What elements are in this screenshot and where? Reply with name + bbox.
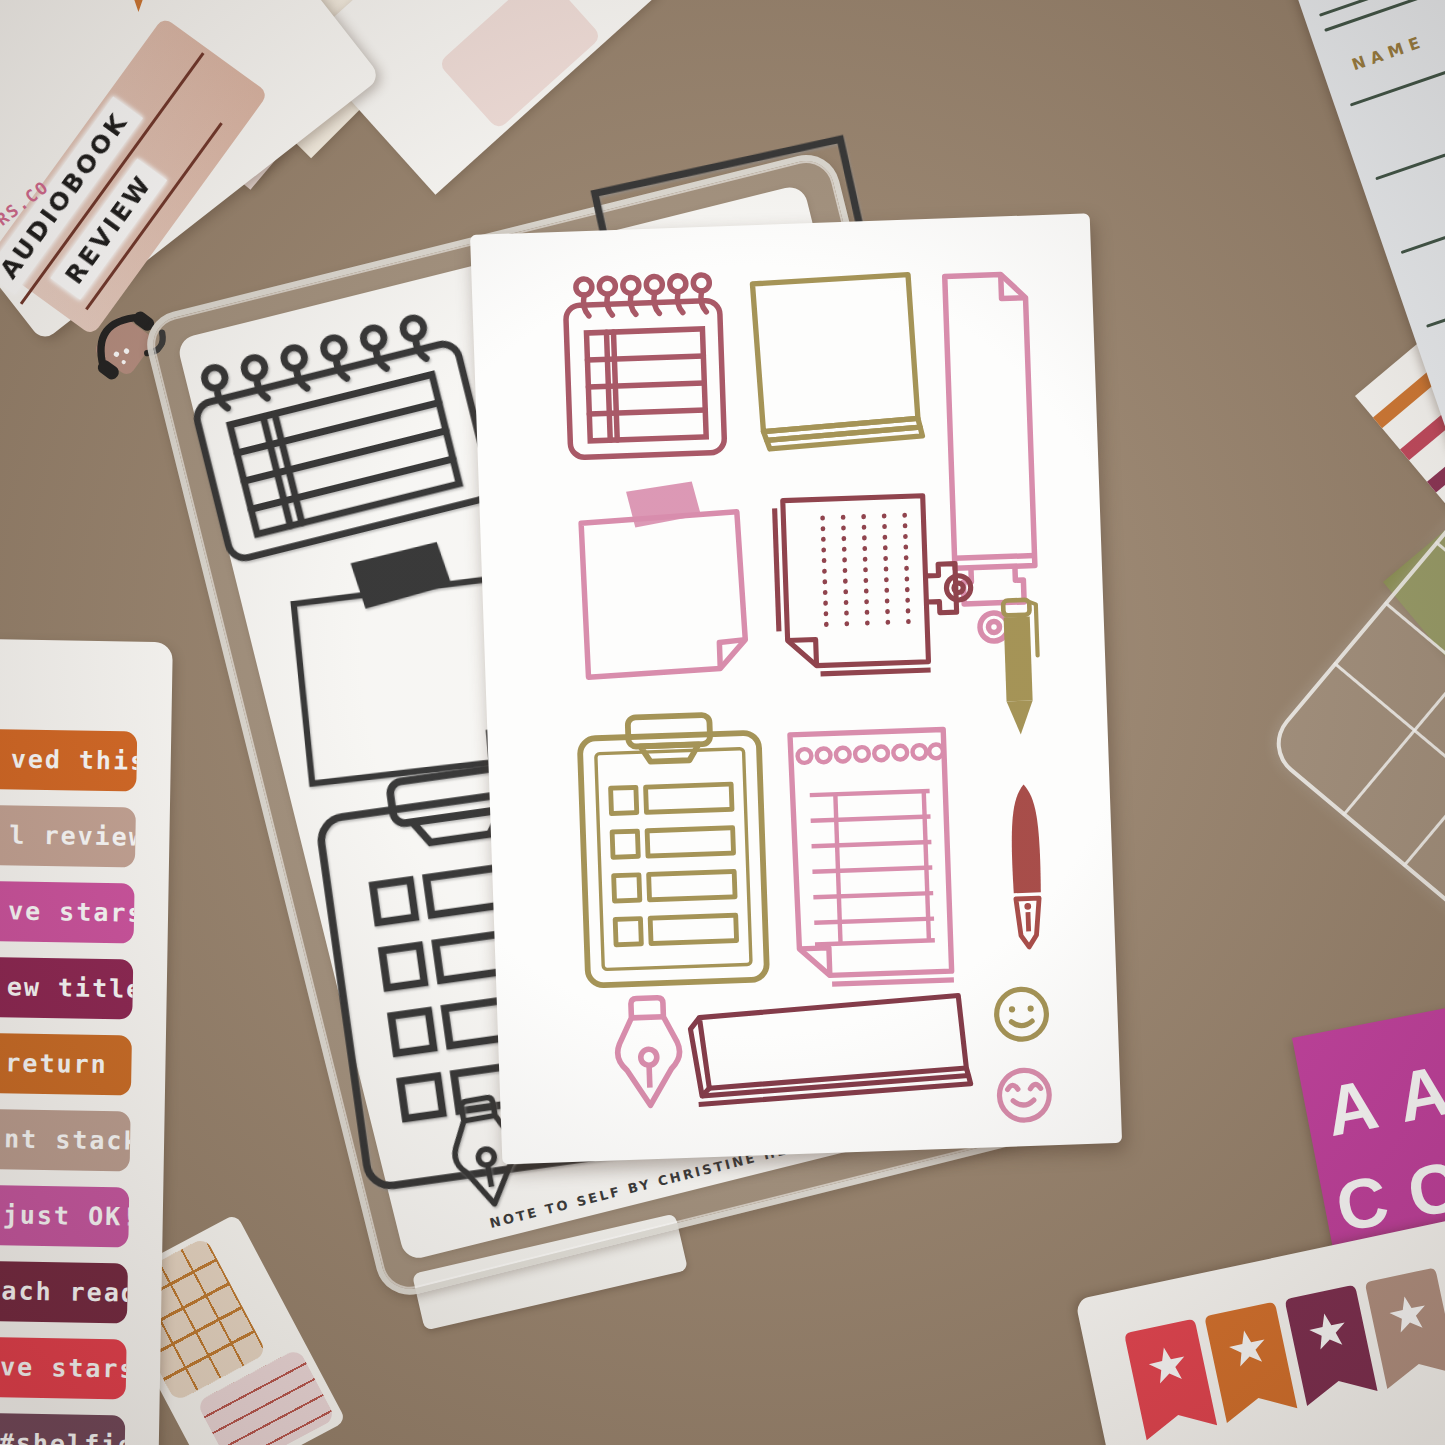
word-sticker-label: l review — [9, 820, 136, 851]
rule-line — [1426, 182, 1445, 328]
letter-sticker: C — [1401, 1146, 1445, 1234]
word-sticker: ew title — [0, 956, 133, 1019]
word-sticker-label: ve stars — [0, 1352, 127, 1383]
word-sticker: ach read — [0, 1260, 128, 1323]
clipboard-checklist-stamp — [571, 707, 776, 996]
acrylic-stamping-block — [1262, 412, 1445, 1029]
word-sticker: return — [0, 1032, 132, 1095]
ballpoint-pen-stamp — [988, 585, 1050, 757]
fountain-pen-stamp — [994, 775, 1059, 972]
ring-notepad-stamp — [777, 713, 965, 1004]
sticky-note-stack-stamp — [736, 264, 928, 465]
word-sticker: ve stars — [0, 1336, 127, 1399]
word-sticker-label: ve stars — [8, 896, 135, 927]
word-sticker-label: #shelfie — [0, 1428, 125, 1445]
word-sticker-label: nt stack — [4, 1124, 131, 1155]
word-sticker: #shelfie — [0, 1412, 125, 1445]
word-sticker: nt stack — [0, 1108, 131, 1171]
dotted-page-binder-clip-stamp — [756, 485, 978, 688]
word-sticker: ve stars — [0, 880, 135, 943]
word-sticker: just OK! — [0, 1184, 129, 1247]
spiral-notepad-stamp — [556, 260, 733, 466]
name-label: NAME — [1349, 31, 1428, 74]
letter-sticker: A — [1319, 1064, 1384, 1152]
smiley-happy-eyes-stamp — [994, 1065, 1054, 1125]
washi-sticky-note-stamp — [566, 478, 753, 699]
stamped-card — [470, 213, 1122, 1164]
folded-paper-stamp — [669, 982, 984, 1133]
word-sticker-label: ach read — [1, 1276, 128, 1307]
smiley-open-eyes-stamp — [992, 984, 1052, 1044]
letter-sticker: A — [1391, 1050, 1445, 1138]
rule-line — [1401, 108, 1445, 254]
word-sticker: l review — [0, 804, 136, 867]
word-sticker: ved this — [0, 728, 137, 791]
word-sticker-sheet: ved this l review ve stars ew title retu… — [0, 638, 173, 1445]
word-sticker-label: return — [5, 1048, 108, 1079]
word-sticker-label: ved this — [11, 744, 138, 775]
word-sticker-label: ew title — [7, 972, 134, 1003]
craft-flatlay-photo: AUDIOBOOK REVIEW RS.CO NAME A — [0, 0, 1445, 1445]
word-sticker-label: just OK! — [3, 1200, 130, 1231]
